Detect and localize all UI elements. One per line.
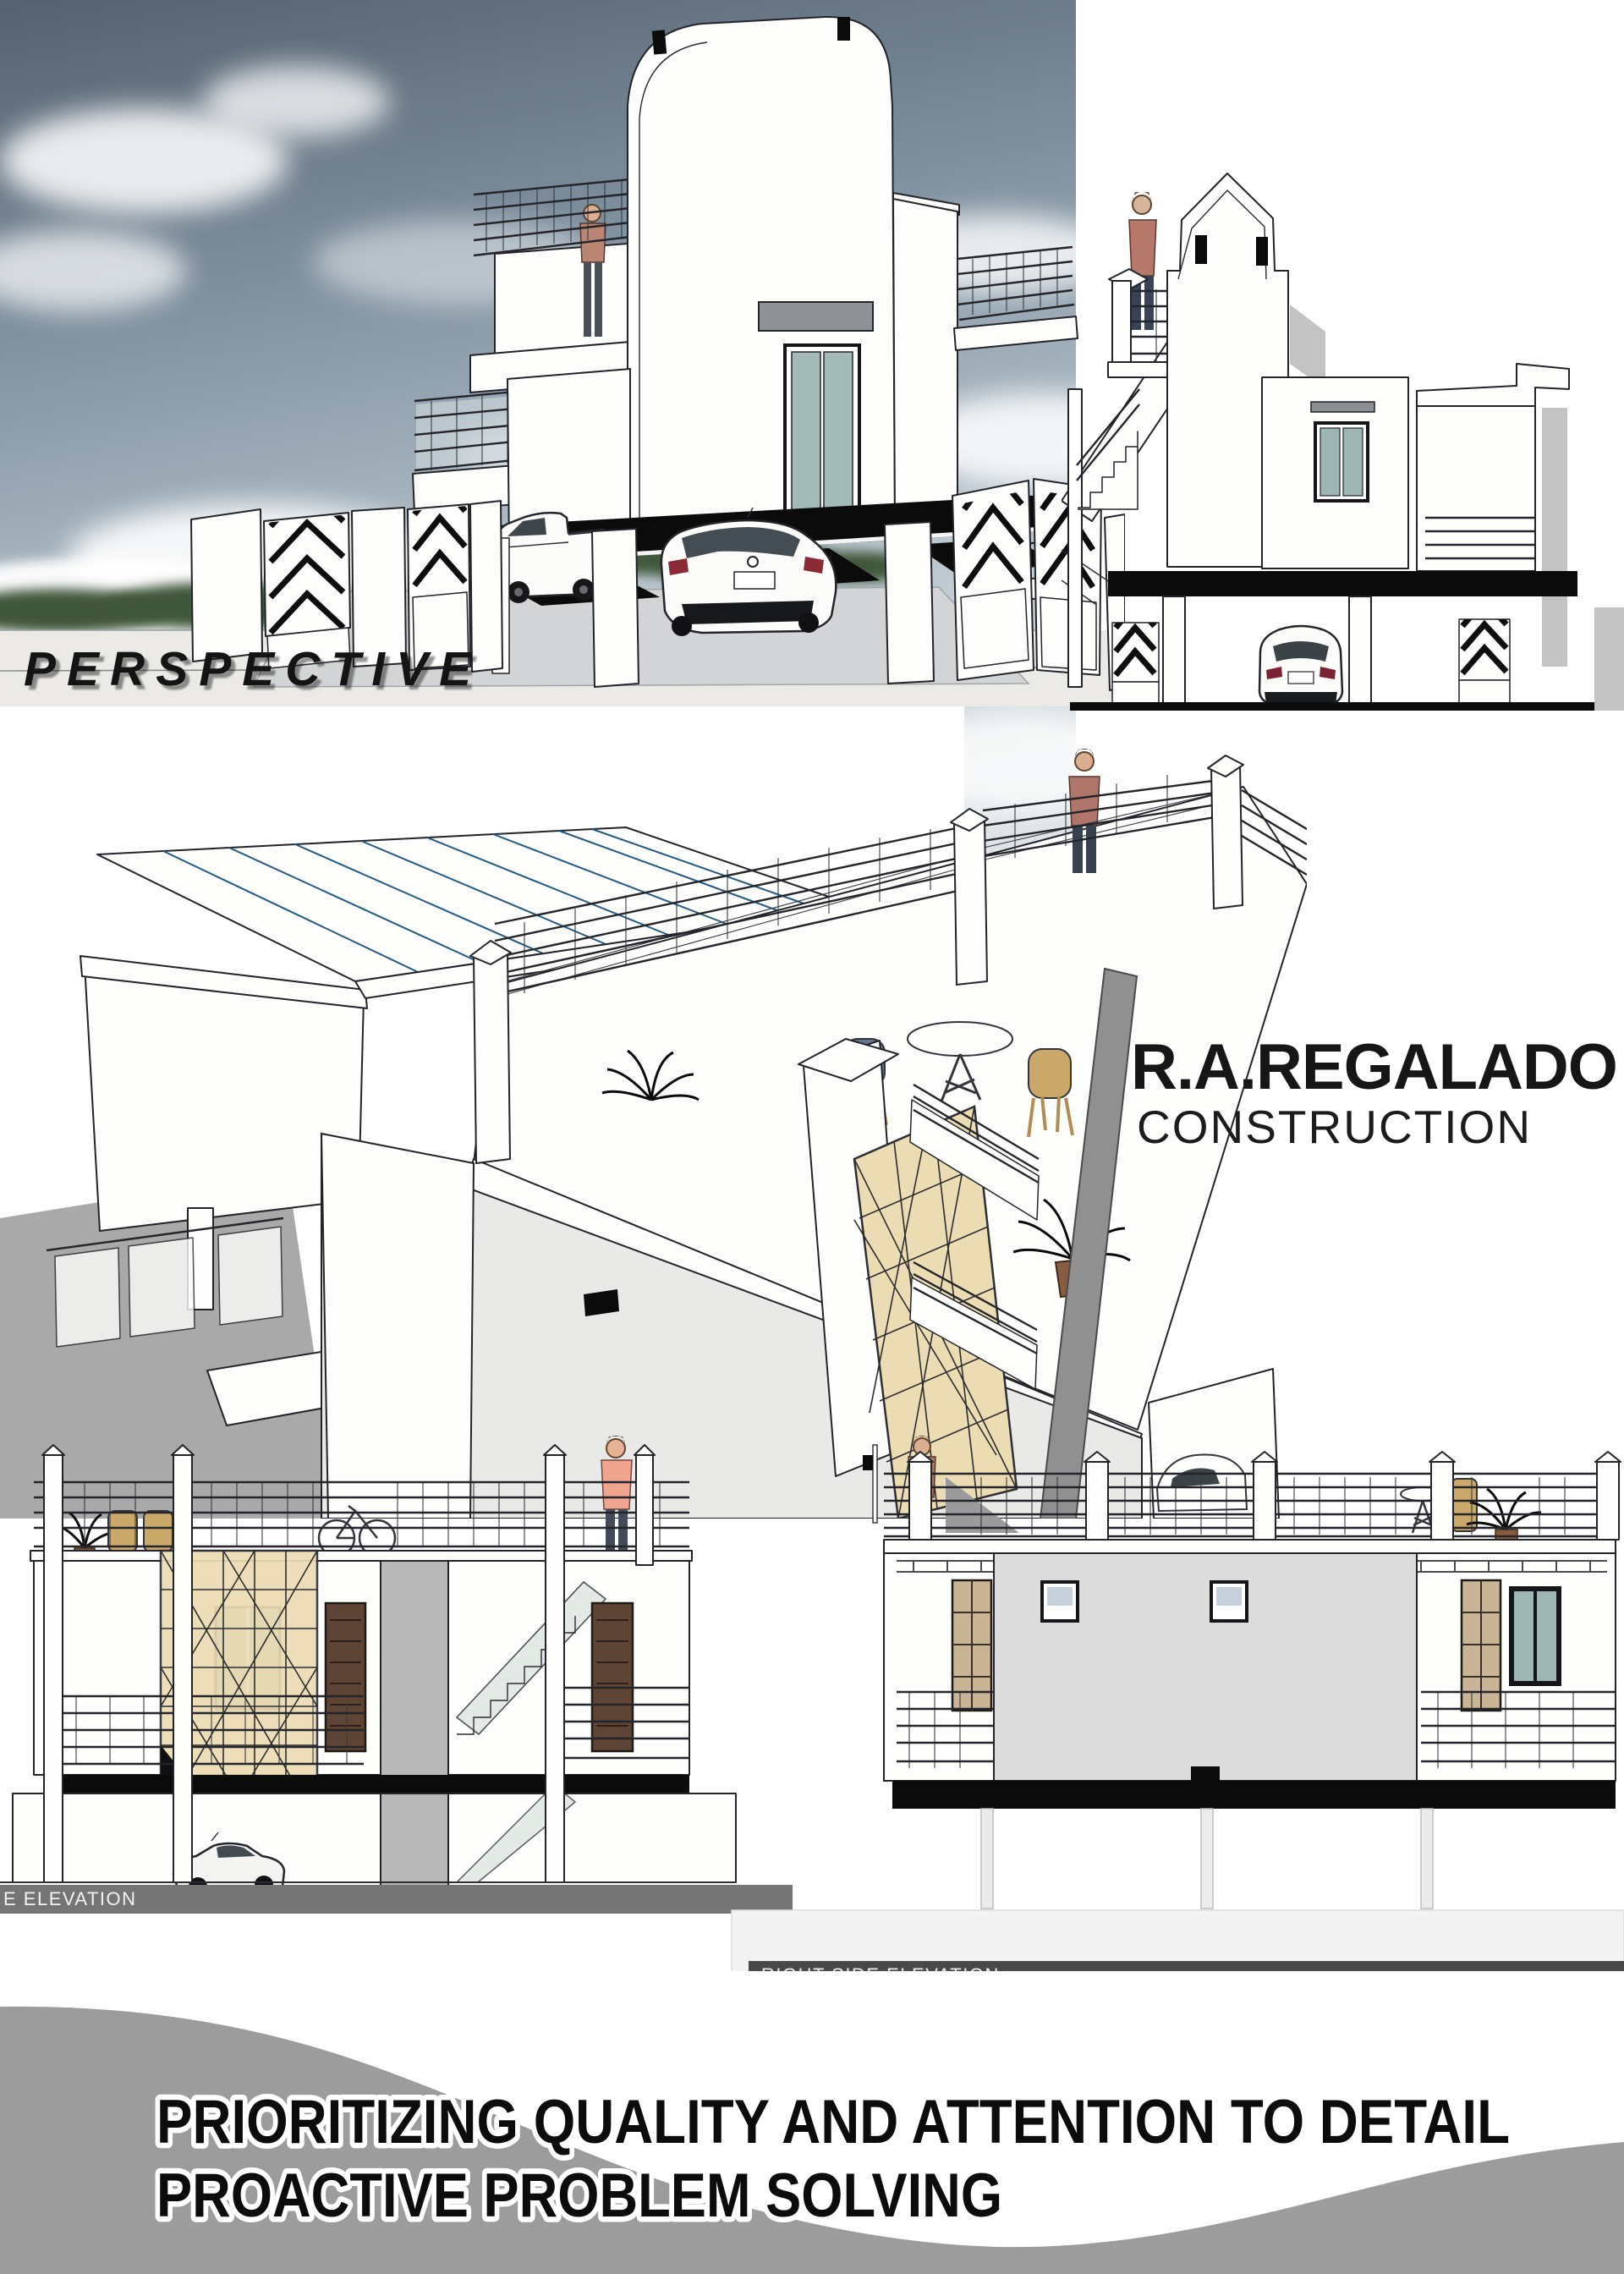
door-left	[326, 1603, 365, 1751]
cross-section-render	[1062, 110, 1624, 711]
presentation-board: E ELEVATION	[0, 0, 1624, 2274]
gabled-section	[1167, 173, 1408, 568]
deck-person	[601, 1436, 632, 1553]
ground-floor	[1112, 596, 1510, 706]
slogan-line-2: PROACTIVE PROBLEM SOLVING	[156, 2161, 1002, 2230]
flag-pole	[863, 1445, 877, 1523]
undercroft-posts	[981, 1809, 1433, 1909]
small-window-2	[1211, 1582, 1247, 1621]
section-car	[1259, 626, 1342, 704]
facade	[884, 1540, 1616, 1781]
company-name: R.A.REGALADO	[1131, 1030, 1617, 1104]
roof-deck-perspective-render	[0, 702, 1307, 1519]
gate-panel-right	[1459, 601, 1510, 706]
company-subtitle: CONSTRUCTION	[1137, 1100, 1532, 1154]
base-band	[892, 1781, 1616, 1809]
window-louver	[759, 302, 873, 331]
perspective-title: PERSPECTIVE	[24, 641, 482, 697]
tower-window	[785, 345, 859, 519]
exterior-perspective-render	[0, 0, 1125, 706]
gate-panel-left	[1112, 604, 1159, 706]
floor-band	[59, 1775, 689, 1793]
ground-slab	[1070, 702, 1594, 711]
section-building	[1068, 173, 1594, 711]
left-elevation-label-bar: E ELEVATION	[0, 1885, 793, 1914]
section-window	[1315, 423, 1368, 501]
slogan-line-1: PRIORITIZING QUALITY AND ATTENTION TO DE…	[156, 2088, 1510, 2156]
window-right	[1509, 1586, 1561, 1686]
roof-deck-railing	[884, 1452, 1621, 1541]
small-window-1	[1042, 1582, 1078, 1621]
railing-posts	[908, 1452, 1621, 1540]
main-tower	[628, 17, 959, 543]
stair-shadow	[946, 1477, 1019, 1533]
footer-swoosh: PRIORITIZING QUALITY AND ATTENTION TO DE…	[0, 1971, 1624, 2274]
left-elevation-label: E ELEVATION	[3, 1888, 137, 1909]
floor-slab	[1108, 571, 1577, 596]
left-side-elevation-drawing: E ELEVATION	[0, 1430, 804, 1925]
terrace-person	[1129, 192, 1156, 330]
roof-deck-railing	[30, 1482, 692, 1562]
door-right	[592, 1603, 633, 1751]
